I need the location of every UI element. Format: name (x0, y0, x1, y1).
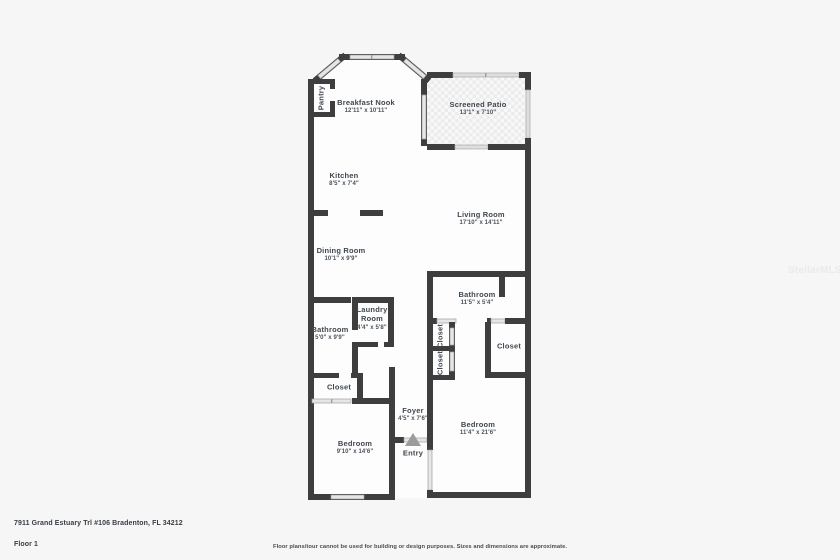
room-dims: 9'10" x 14'6" (337, 449, 374, 455)
room-name: Dining Room (317, 246, 366, 255)
room-label-screened-patio: Screened Patio 13'1" x 7'10" (450, 100, 507, 116)
room-label-kitchen: Kitchen 8'5" x 7'4" (329, 171, 359, 187)
room-label-bathroom-left: Bathroom 5'0" x 9'9" (311, 325, 348, 341)
room-label-bedroom-left: Bedroom 9'10" x 14'6" (337, 439, 374, 455)
room-dims: 10'1" x 9'9" (317, 256, 366, 262)
room-label-bathroom-right: Bathroom 11'5" x 5'4" (458, 290, 495, 306)
room-name: Bathroom (311, 325, 348, 334)
room-dims: 11'5" x 5'4" (458, 300, 495, 306)
room-name: Bedroom (460, 420, 496, 429)
room-dims: 17'10" x 14'11" (457, 220, 505, 226)
room-label-laundry-room: Laundry Room 4'4" x 5'8" (353, 305, 391, 331)
room-name: Laundry Room (353, 305, 391, 324)
room-name: Screened Patio (450, 100, 507, 109)
room-name: Living Room (457, 210, 505, 219)
room-name: Kitchen (329, 171, 359, 180)
room-name: Closet (497, 341, 521, 350)
room-name: Closet (327, 382, 351, 391)
room-label-bedroom-right: Bedroom 11'4" x 21'6" (460, 420, 496, 436)
room-dims: 4'4" x 5'8" (353, 325, 391, 331)
room-dims: 12'11" x 10'11" (337, 108, 395, 114)
room-dims: 11'4" x 21'6" (460, 430, 496, 436)
property-address: 7911 Grand Estuary Trl #106 Bradenton, F… (14, 520, 183, 527)
room-label-pantry: Pantry (316, 86, 325, 111)
room-name: Foyer (398, 406, 428, 415)
room-name: Bedroom (337, 439, 374, 448)
room-name: Entry (403, 448, 423, 457)
disclaimer-text: Floor plans/tour cannot be used for buil… (0, 544, 840, 550)
room-dims: 5'0" x 9'9" (311, 335, 348, 341)
room-label-living-room: Living Room 17'10" x 14'11" (457, 210, 505, 226)
room-name: Bathroom (458, 290, 495, 299)
room-name: Closet (435, 324, 444, 348)
floor-plan-page: { "page": { "watermark": "StellarMLS" },… (0, 0, 840, 560)
room-name: Breakfast Nook (337, 98, 395, 107)
room-dims: 8'5" x 7'4" (329, 181, 359, 187)
room-label-closet-4: Closet (327, 382, 351, 391)
room-dims: 4'5" x 7'6" (398, 416, 428, 422)
room-name: Closet (435, 351, 444, 375)
room-label-dining-room: Dining Room 10'1" x 9'9" (317, 246, 366, 262)
room-label-breakfast-nook: Breakfast Nook 12'11" x 10'11" (337, 98, 395, 114)
room-name: Pantry (316, 86, 325, 111)
room-label-closet-1: Closet (435, 324, 444, 348)
room-label-closet-2: Closet (435, 351, 444, 375)
floorplan-drawing (0, 0, 840, 560)
room-label-foyer: Foyer 4'5" x 7'6" (398, 406, 428, 422)
entry-label: Entry (403, 448, 423, 457)
stellar-mls-watermark: StellarMLS (788, 265, 840, 276)
room-label-closet-3: Closet (497, 341, 521, 350)
room-dims: 13'1" x 7'10" (450, 110, 507, 116)
